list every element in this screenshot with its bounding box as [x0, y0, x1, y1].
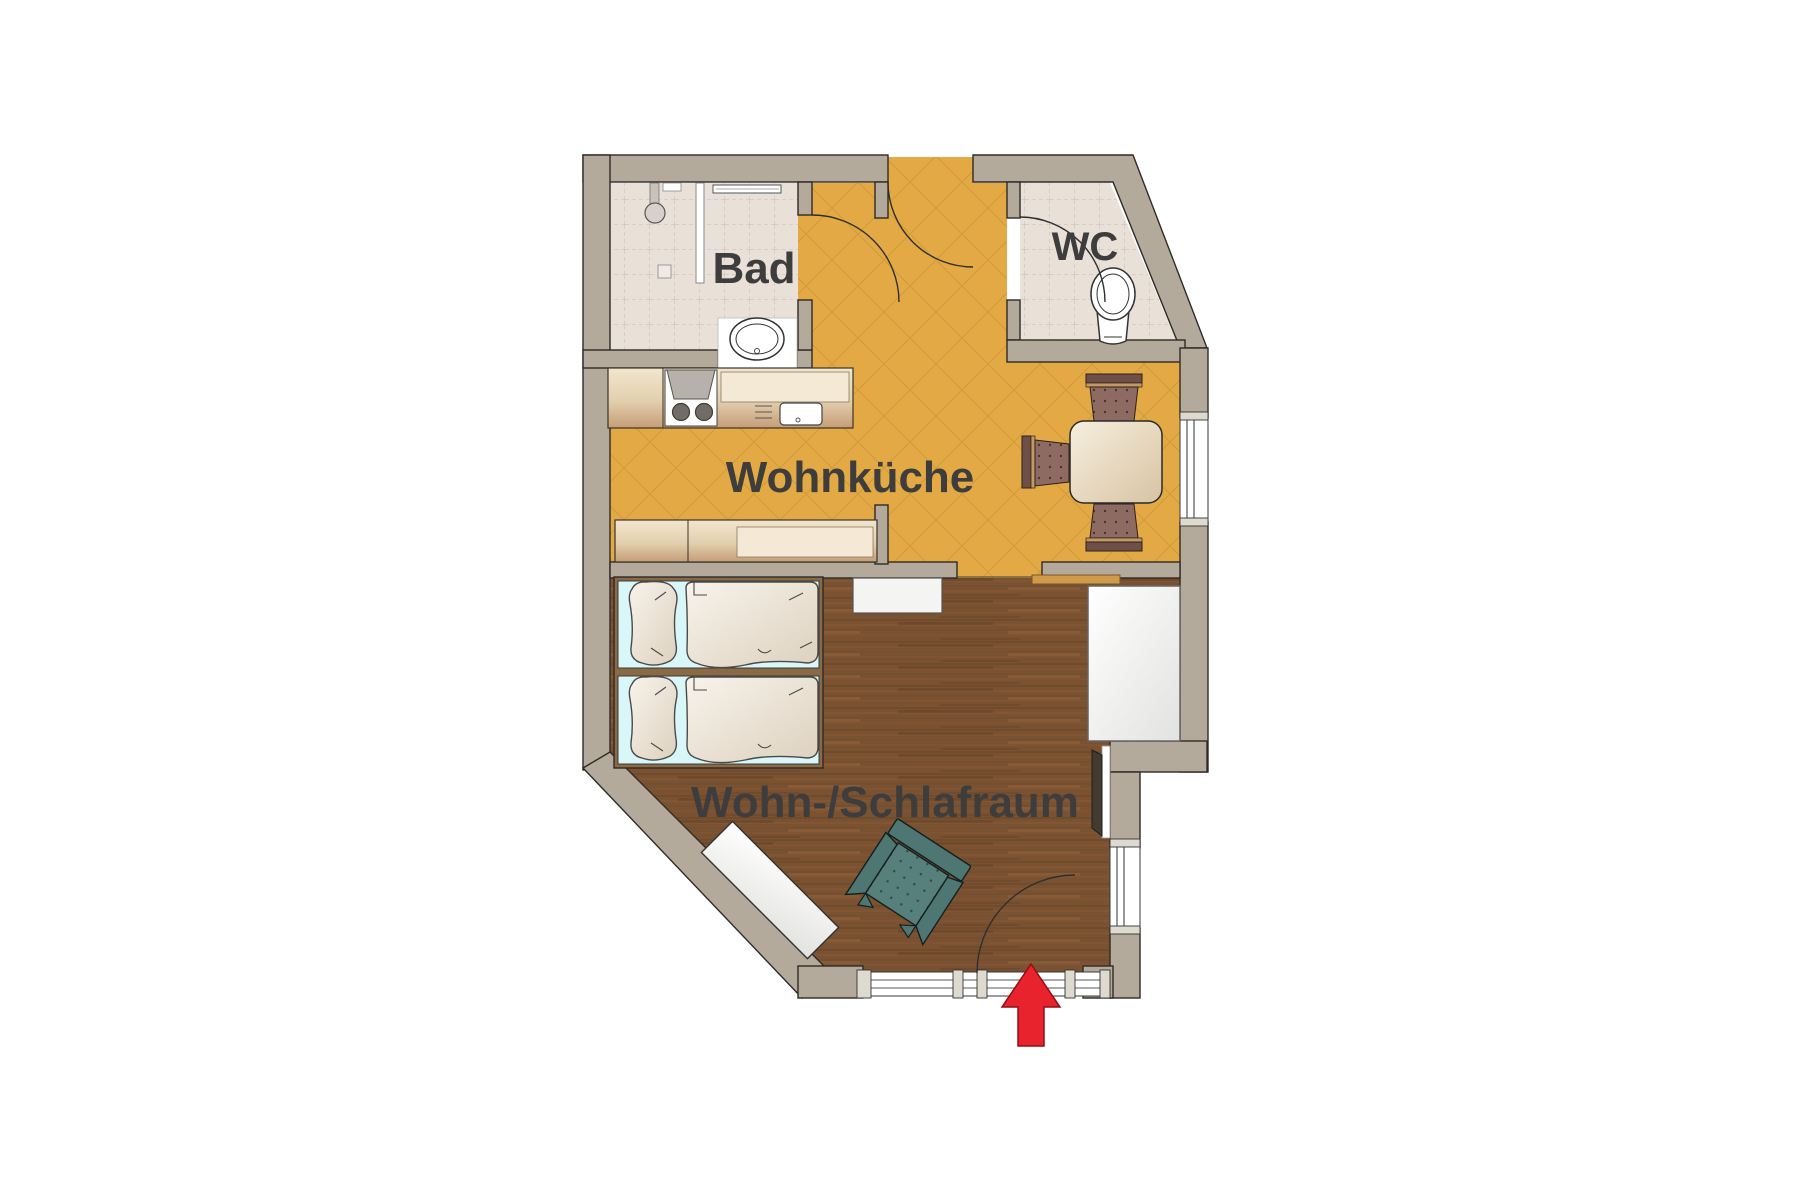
- wall-wc-left-upper: [1007, 182, 1020, 218]
- wall-bath-bottom-left: [583, 350, 718, 368]
- dining-chair-top: [1086, 374, 1142, 421]
- bathroom-label: Bad: [712, 244, 795, 293]
- burner-icon: [673, 404, 690, 421]
- shower-glass-screen: [696, 183, 704, 283]
- floor-plan-canvas: Bad WC Wohnküche Wohn-/Schlafraum: [0, 0, 1800, 1200]
- wall-left: [583, 155, 610, 770]
- wall-wc-bottom: [1007, 340, 1185, 362]
- living-window-right: [1110, 839, 1140, 934]
- wall-pier-bottom-right: [1110, 928, 1140, 998]
- wall-bath-right-upper: [798, 182, 812, 215]
- kitchen-counter-bottom: [615, 520, 877, 562]
- wall-right-lower: [1110, 772, 1140, 848]
- entry-door-floor: [888, 157, 973, 184]
- floor-plan-page: Bad WC Wohnküche Wohn-/Schlafraum: [0, 0, 1800, 1200]
- threshold-strip: [1032, 575, 1120, 584]
- burner-icon: [696, 404, 713, 421]
- balcony-door: [1092, 746, 1110, 838]
- double-bed: [614, 577, 823, 768]
- dining-chair-left: [1022, 436, 1069, 488]
- living-room-label: Wohn-/Schlafraum: [691, 778, 1079, 827]
- dining-chair-bottom: [1086, 504, 1142, 551]
- kitchen-window-right: [1180, 412, 1208, 526]
- dining-table: [1070, 421, 1162, 503]
- wall-right-middle: [1180, 522, 1208, 772]
- wall-fitting: [663, 183, 681, 191]
- bed-pillow: [629, 677, 677, 760]
- wall-entry-jamb: [875, 182, 888, 218]
- shower-arm: [650, 183, 659, 204]
- kitchen-sink-icon: [780, 403, 822, 425]
- wall-pier-bottom-left: [798, 966, 863, 998]
- wall-right-step: [1110, 741, 1207, 772]
- wall-right-upper: [1180, 348, 1208, 418]
- wardrobe: [1088, 586, 1180, 741]
- wall-wc-left-lower: [1007, 300, 1020, 340]
- wall-interior-left: [610, 562, 957, 578]
- living-window-bottom: [857, 970, 1110, 998]
- doorway-floor: [957, 562, 1042, 578]
- extractor-hood-icon: [667, 370, 715, 399]
- bed-duvet: [686, 677, 818, 763]
- bed-pillow: [629, 582, 677, 665]
- shower-drain: [658, 265, 671, 278]
- toilet-bowl-icon: [1091, 268, 1135, 320]
- wall-bath-bottom-right: [797, 350, 812, 368]
- bed-duvet: [686, 582, 818, 668]
- kitchen-counter-top: [608, 368, 853, 428]
- wall-bath-right-lower: [798, 300, 812, 350]
- sideboard-top: [853, 578, 942, 613]
- wc-label: WC: [1052, 225, 1119, 269]
- kitchen-label: Wohnküche: [726, 453, 975, 502]
- shower-head-icon: [645, 203, 665, 223]
- wall-top-left: [583, 155, 888, 182]
